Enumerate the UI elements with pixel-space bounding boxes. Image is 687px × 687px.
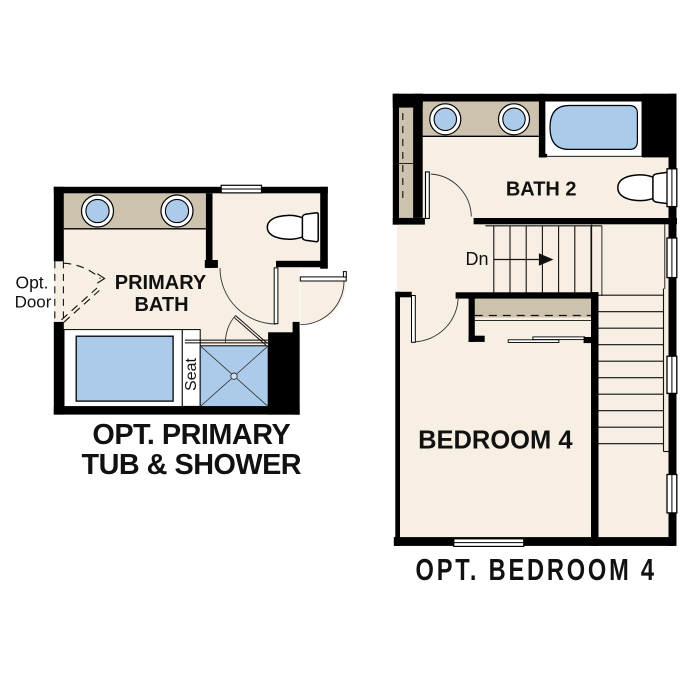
svg-text:Opt.: Opt.: [15, 273, 48, 293]
svg-text:BATH: BATH: [134, 294, 188, 316]
svg-text:Door: Door: [15, 293, 52, 312]
svg-text:OPT. BEDROOM 4: OPT. BEDROOM 4: [416, 552, 657, 587]
svg-text:Seat: Seat: [183, 357, 200, 390]
svg-text:Dn: Dn: [465, 249, 488, 269]
svg-text:PRIMARY: PRIMARY: [115, 272, 207, 294]
svg-text:BATH 2: BATH 2: [506, 179, 577, 201]
svg-text:OPT. PRIMARY: OPT. PRIMARY: [92, 419, 290, 451]
svg-text:BEDROOM 4: BEDROOM 4: [418, 427, 573, 455]
svg-text:TUB & SHOWER: TUB & SHOWER: [82, 449, 302, 481]
